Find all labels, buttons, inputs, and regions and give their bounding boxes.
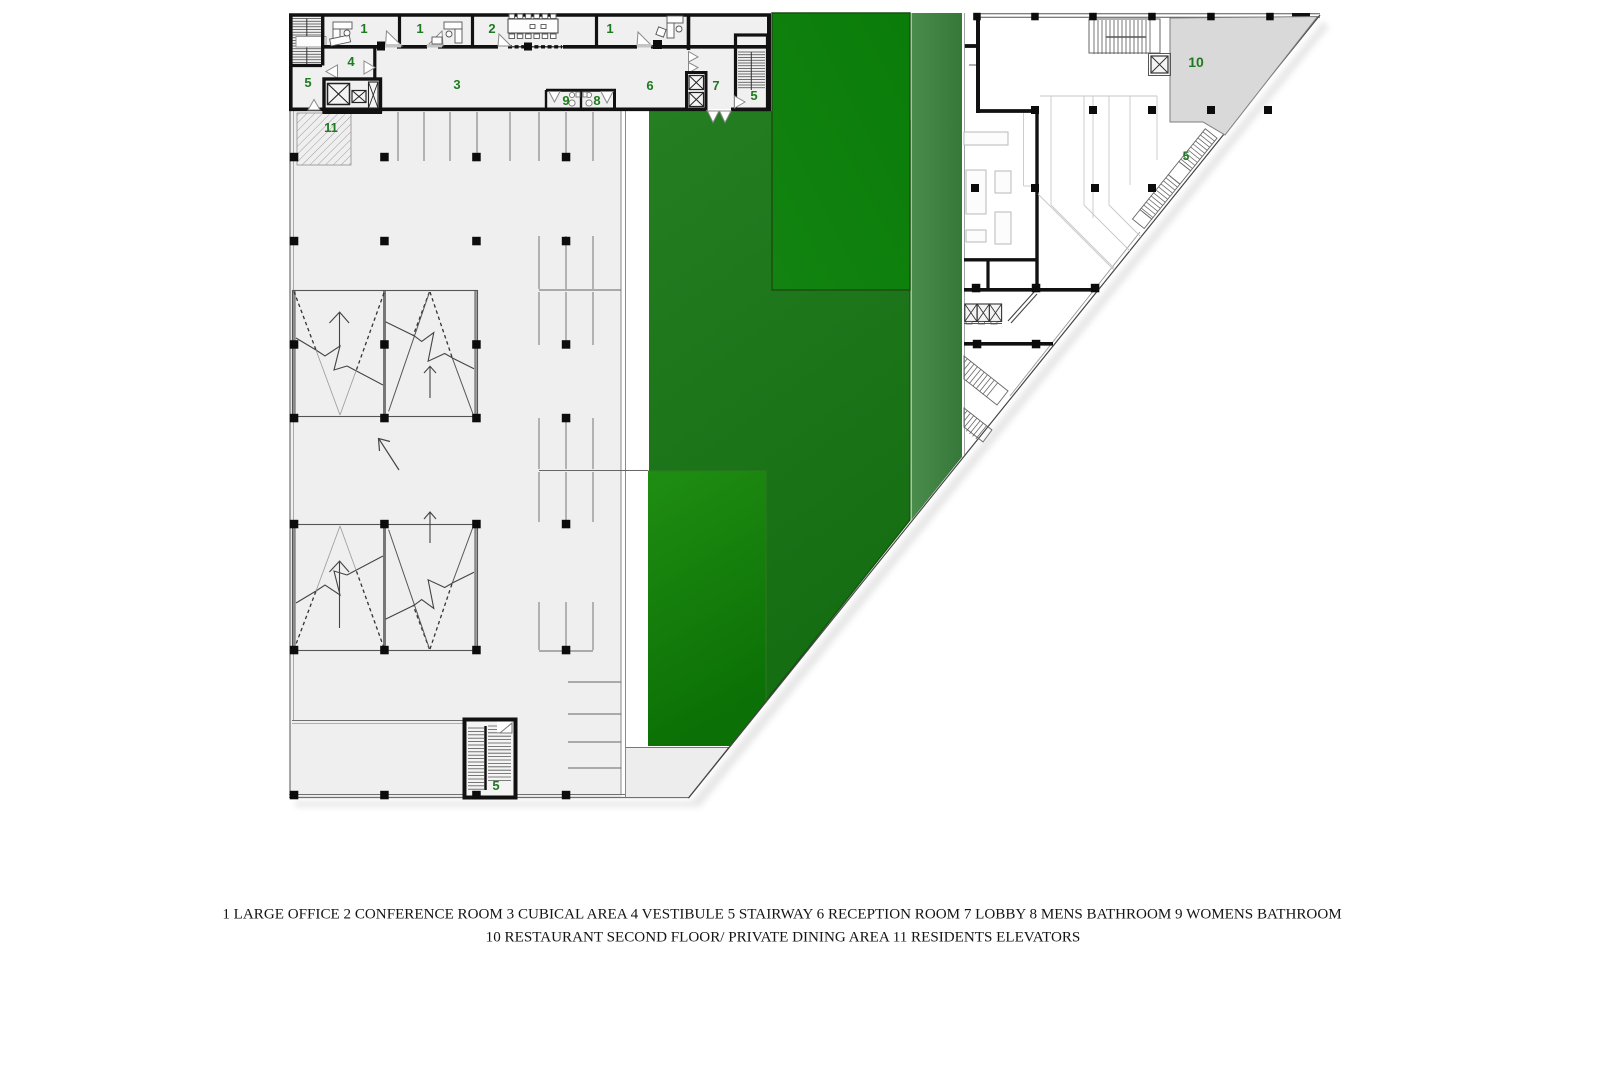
svg-text:5: 5 xyxy=(750,88,757,103)
svg-text:2: 2 xyxy=(488,21,495,36)
svg-text:5: 5 xyxy=(304,75,311,90)
svg-text:10 RESTAURANT SECOND FLOOR/ PR: 10 RESTAURANT SECOND FLOOR/ PRIVATE DINI… xyxy=(486,930,1081,946)
svg-text:1: 1 xyxy=(360,21,367,36)
svg-text:1: 1 xyxy=(606,21,613,36)
svg-text:4: 4 xyxy=(347,54,355,69)
svg-text:1 LARGE OFFICE 2 CONFERENCE RO: 1 LARGE OFFICE 2 CONFERENCE ROOM 3 CUBIC… xyxy=(222,907,1341,923)
svg-text:1: 1 xyxy=(416,21,423,36)
svg-text:8: 8 xyxy=(593,93,600,108)
svg-text:6: 6 xyxy=(646,78,653,93)
svg-text:5: 5 xyxy=(492,778,499,793)
svg-text:9: 9 xyxy=(562,93,569,108)
svg-text:3: 3 xyxy=(453,77,460,92)
svg-text:5: 5 xyxy=(1183,149,1190,163)
svg-text:10: 10 xyxy=(1188,54,1204,70)
svg-text:11: 11 xyxy=(324,120,338,135)
svg-text:7: 7 xyxy=(712,78,719,93)
